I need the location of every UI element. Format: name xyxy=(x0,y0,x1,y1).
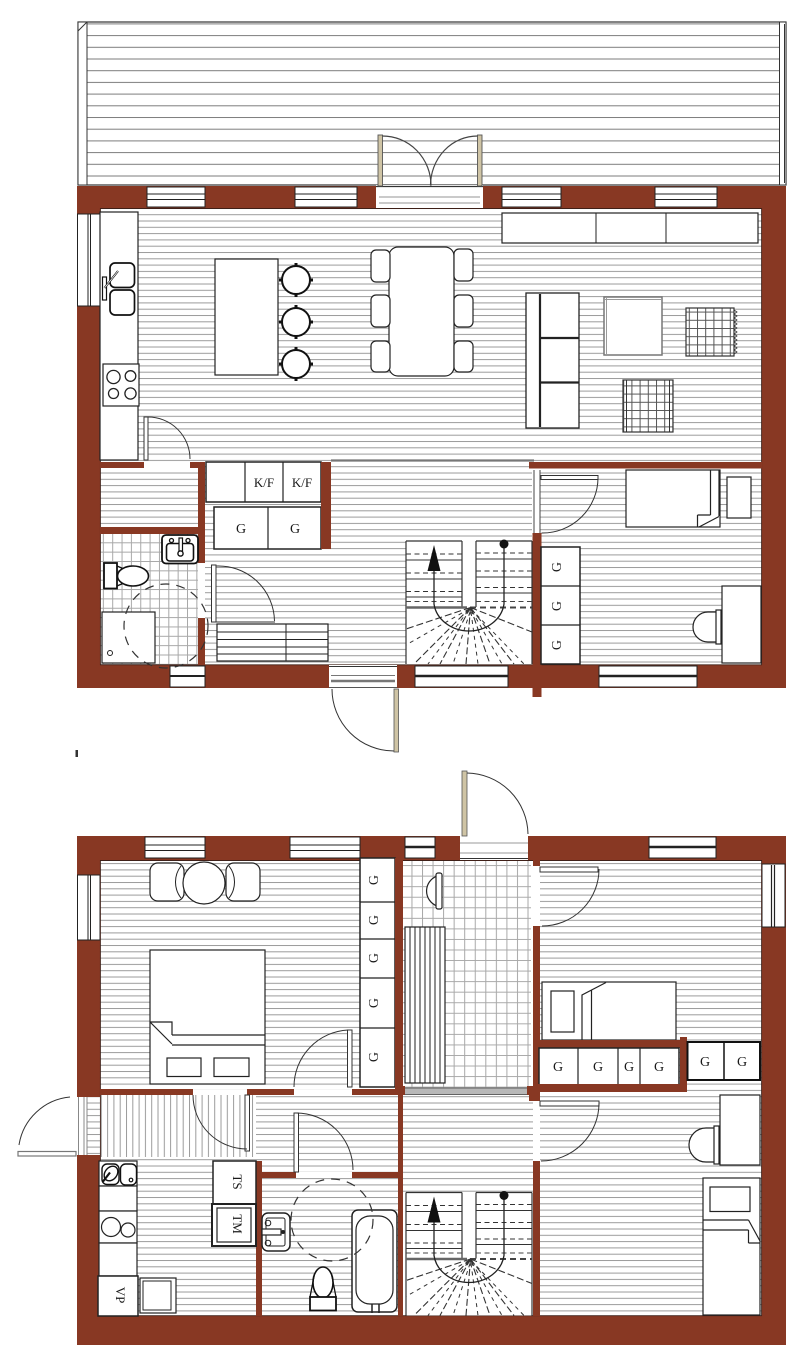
svg-text:G: G xyxy=(700,1055,710,1070)
svg-text:G: G xyxy=(624,1060,634,1075)
svg-text:G: G xyxy=(550,640,565,650)
svg-text:G: G xyxy=(654,1060,664,1075)
svg-text:TS: TS xyxy=(230,1174,245,1189)
svg-text:G: G xyxy=(550,601,565,611)
svg-text:G: G xyxy=(367,875,382,885)
svg-text:G: G xyxy=(367,1052,382,1062)
svg-text:G: G xyxy=(236,522,246,537)
svg-text:K/F: K/F xyxy=(254,475,274,490)
svg-text:G: G xyxy=(593,1060,603,1075)
svg-text:G: G xyxy=(367,953,382,963)
svg-text:G: G xyxy=(550,562,565,572)
svg-text:K/F: K/F xyxy=(292,475,312,490)
svg-text:TM: TM xyxy=(230,1214,245,1234)
svg-text:G: G xyxy=(367,998,382,1008)
svg-text:G: G xyxy=(290,522,300,537)
svg-text:VP: VP xyxy=(113,1287,128,1304)
svg-text:G: G xyxy=(737,1055,747,1070)
svg-text:G: G xyxy=(367,915,382,925)
svg-text:G: G xyxy=(553,1060,563,1075)
